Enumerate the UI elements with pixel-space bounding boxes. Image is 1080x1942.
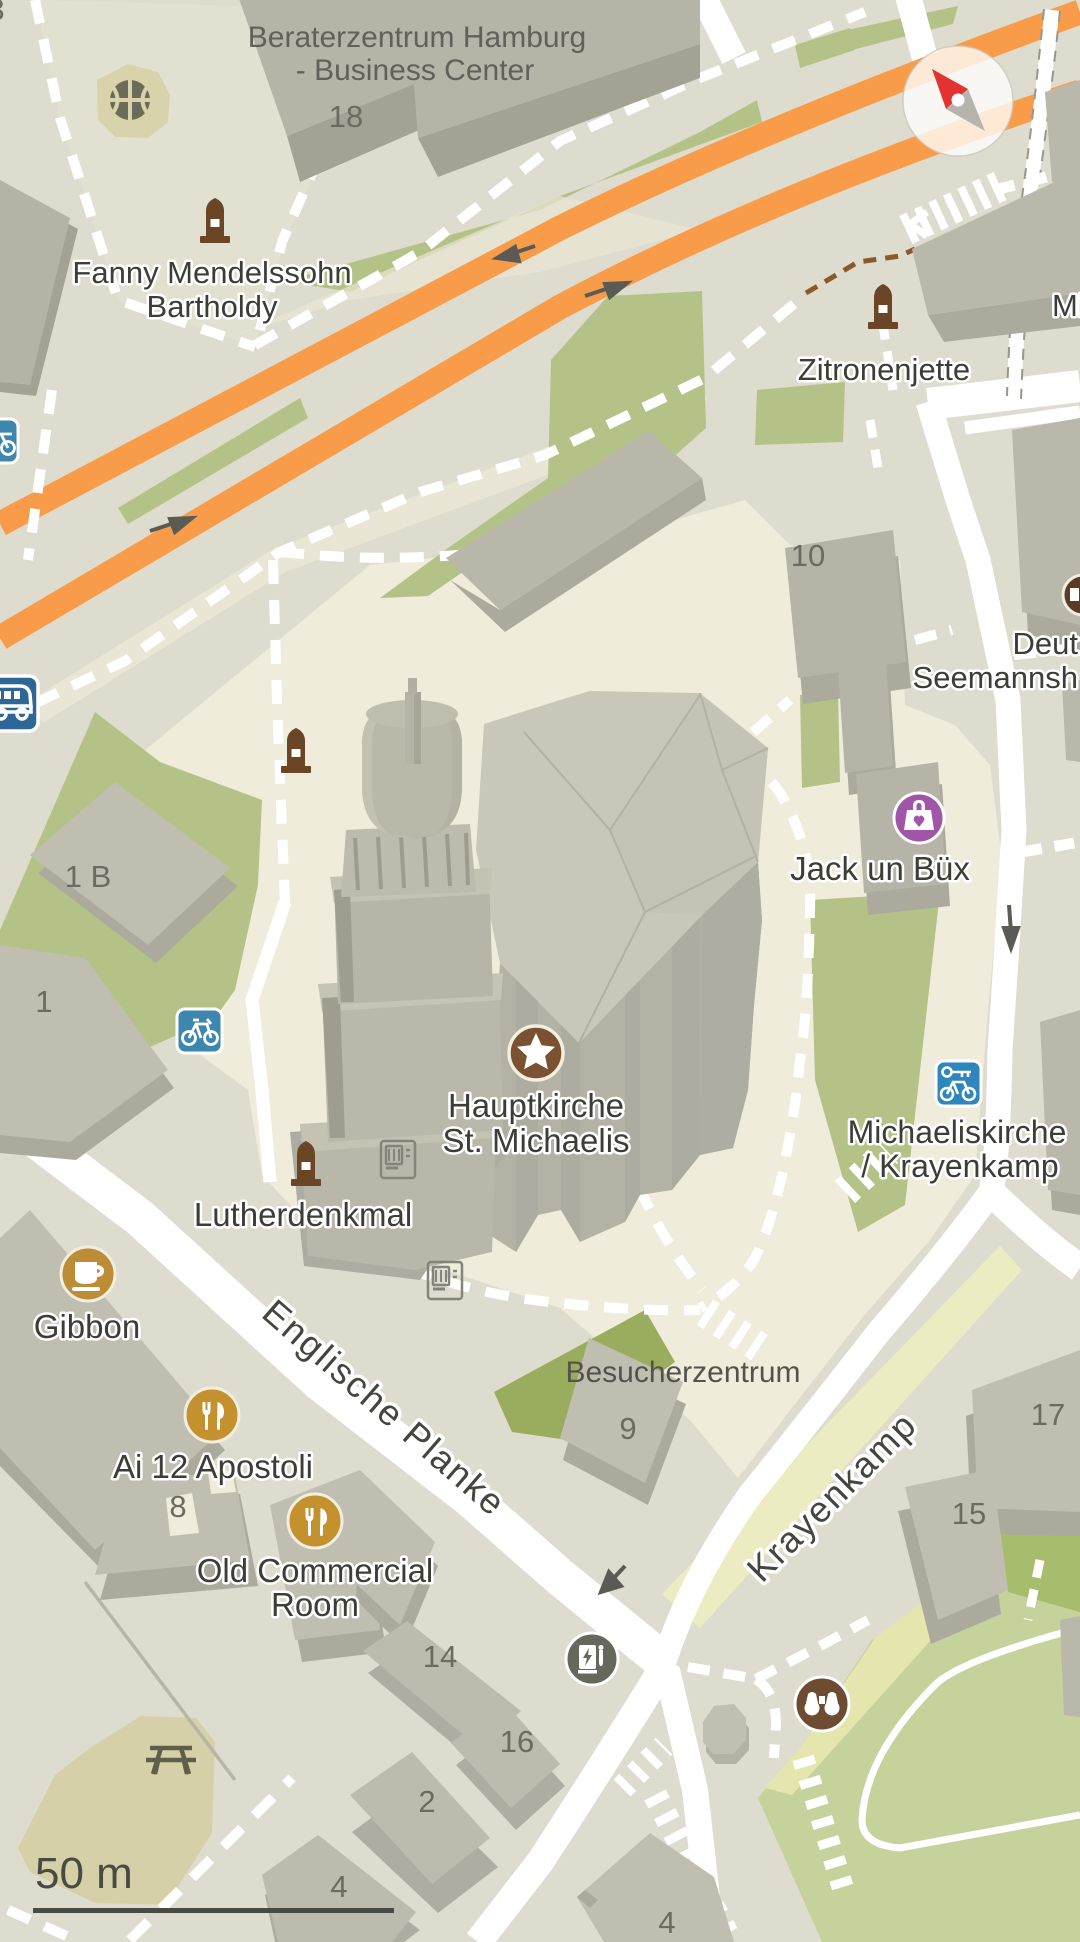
svg-text:Gibbon: Gibbon [34, 1308, 140, 1345]
svg-text:4: 4 [330, 1869, 347, 1904]
svg-text:3: 3 [0, 0, 5, 27]
svg-text:2: 2 [418, 1784, 435, 1819]
svg-text:Ai 12 Apostoli: Ai 12 Apostoli [113, 1448, 313, 1485]
svg-text:Besucherzentrum: Besucherzentrum [565, 1356, 800, 1389]
svg-text:1 B: 1 B [65, 859, 112, 894]
svg-text:Beraterzentrum Hamburg: Beraterzentrum Hamburg [248, 21, 586, 54]
svg-text:Room: Room [271, 1586, 359, 1623]
svg-text:9: 9 [619, 1411, 636, 1446]
svg-text:50 m: 50 m [35, 1849, 133, 1898]
svg-text:17: 17 [1031, 1397, 1065, 1432]
svg-text:8: 8 [169, 1489, 186, 1524]
svg-text:Old Commercial: Old Commercial [197, 1552, 434, 1589]
svg-text:Michaeliskirche: Michaeliskirche [848, 1114, 1067, 1150]
svg-text:St. Michaelis: St. Michaelis [442, 1122, 629, 1159]
svg-text:14: 14 [423, 1639, 457, 1674]
svg-text:Lutherdenkmal: Lutherdenkmal [194, 1196, 412, 1233]
svg-text:Bartholdy: Bartholdy [147, 289, 278, 324]
svg-text:Deut: Deut [1013, 626, 1079, 661]
svg-text:10: 10 [791, 538, 825, 573]
svg-text:18: 18 [329, 99, 363, 134]
svg-text:15: 15 [952, 1496, 986, 1531]
svg-text:- Business Center: - Business Center [296, 54, 534, 87]
svg-text:Hauptkirche: Hauptkirche [448, 1087, 624, 1124]
svg-text:16: 16 [500, 1724, 534, 1759]
svg-text:Seemannsh: Seemannsh [913, 660, 1078, 695]
svg-text:Zitronenjette: Zitronenjette [798, 352, 970, 387]
svg-text:4: 4 [658, 1905, 675, 1940]
svg-text:Jack un Büx: Jack un Büx [790, 850, 970, 887]
svg-text:/ Krayenkamp: / Krayenkamp [861, 1148, 1058, 1184]
svg-text:Fanny Mendelssohn: Fanny Mendelssohn [72, 255, 351, 290]
svg-text:1: 1 [35, 984, 52, 1019]
svg-text:Mi: Mi [1052, 288, 1080, 323]
